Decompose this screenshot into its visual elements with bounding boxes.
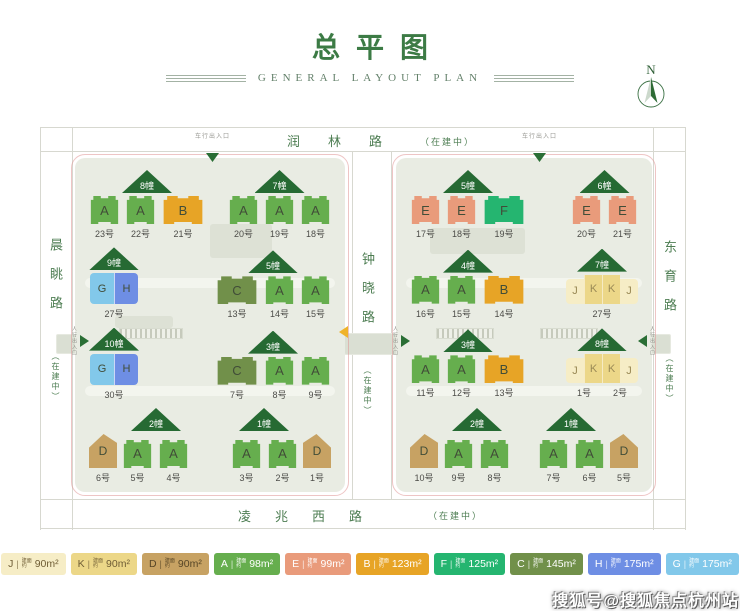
vehicle-entrance: 车行出入口 <box>522 131 557 162</box>
block-marker: 9幢 <box>89 247 139 270</box>
unit: C13号 <box>215 276 259 320</box>
building-A: A <box>410 355 441 383</box>
unit: E20号 <box>571 196 602 240</box>
building-row: 10幢GH30号3幢C7号A8号A9号 <box>85 328 335 401</box>
unit: A6号 <box>574 440 605 484</box>
building-A: A <box>89 196 120 224</box>
watermark: 搜狐号@搜狐焦点杭州站 <box>552 587 739 611</box>
legend-type-label: J <box>8 558 13 570</box>
unit: J <box>620 358 638 383</box>
vehicle-entrance-label: 车行出入口 <box>195 131 230 140</box>
road-line <box>40 151 686 152</box>
unit: A7号 <box>538 440 569 484</box>
legend-separator: | <box>160 559 162 569</box>
unit-number: 1号 <box>310 471 324 484</box>
building-group: 2幢D6号A5号A4号 <box>89 408 189 484</box>
unit-number: 19号 <box>270 227 289 240</box>
unit-number: 7号 <box>230 388 244 401</box>
units-row: E17号E18号F19号 <box>410 196 526 240</box>
unit: D6号 <box>89 434 117 484</box>
entrance-arrow-icon <box>401 335 410 347</box>
building-D: D <box>610 434 638 468</box>
units-row: A11号A12号B13号 <box>410 355 526 399</box>
legend-separator: | <box>302 559 304 569</box>
building-A: A <box>158 440 189 468</box>
unit-number: 30号 <box>104 388 123 401</box>
unit: A8号 <box>479 440 510 484</box>
road-status-right: （在建中） <box>664 354 675 404</box>
unit-number: 2号 <box>275 471 289 484</box>
pedestrian-entrance-label: 人行出入口 <box>392 326 399 356</box>
legend-separator: | <box>88 559 90 569</box>
building-E: E <box>571 196 602 224</box>
unit-number: 13号 <box>227 307 246 320</box>
building-group: 2幢D10号A9号A8号 <box>410 408 510 484</box>
building-row: 3幢A11号A12号B13号8幢JKKJ1号2号 <box>406 328 642 399</box>
unit: A18号 <box>300 196 331 240</box>
unit-number: 16号 <box>416 307 435 320</box>
units-row: GH <box>90 354 138 385</box>
unit-number: 27号 <box>592 307 611 320</box>
unit: D1号 <box>303 434 331 484</box>
unit: B14号 <box>482 276 526 320</box>
road-status-bottom: （在建中） <box>428 509 483 522</box>
unit-number: 20号 <box>234 227 253 240</box>
legend-type-label: K <box>78 558 85 570</box>
block-marker: 7幢 <box>577 249 627 272</box>
legend-chip-D: D|建面约90m² <box>142 553 209 575</box>
legend-type-label: B <box>363 558 370 570</box>
pedestrian-entrance-label: 人行出入口 <box>649 326 656 356</box>
unit: A20号 <box>228 196 259 240</box>
units-row: A16号A15号B14号 <box>410 276 526 320</box>
legend-chip-H: H|建面约175m² <box>588 553 661 575</box>
building-group: 5幢E17号E18号F19号 <box>410 170 526 240</box>
legend-chip-B: B|建面约123m² <box>356 553 428 575</box>
building-A: A <box>228 196 259 224</box>
legend-area-value: 175m² <box>702 558 732 570</box>
building-J: J <box>620 358 638 383</box>
page-subtitle: GENERAL LAYOUT PLAN <box>258 72 482 84</box>
unit: G <box>90 273 114 304</box>
building-row: 5幢E17号E18号F19号6幢E20号E21号 <box>406 170 642 240</box>
building-H: H <box>114 273 138 304</box>
block-marker: 2幢 <box>131 408 181 431</box>
unit: K <box>602 275 620 304</box>
parcel-west: 车行出入口 人行出入口 8幢A23号A22号B21号7幢A20号A19号A18号… <box>75 158 345 492</box>
unit: A9号 <box>443 440 474 484</box>
building-A: A <box>125 196 156 224</box>
road-line <box>40 528 686 529</box>
unit: E17号 <box>410 196 441 240</box>
unit-number: 18号 <box>452 227 471 240</box>
compass-n-label: N <box>646 62 656 77</box>
unit-number: 1号 <box>577 386 591 399</box>
building-group: 7幢A20号A19号A18号 <box>228 170 331 240</box>
unit-number: 6号 <box>582 471 596 484</box>
building-row: 8幢A23号A22号B21号7幢A20号A19号A18号 <box>85 170 335 240</box>
legend-area-value: 90m² <box>178 558 202 570</box>
group-labels: 27号 <box>89 307 139 320</box>
building-group: 8幢A23号A22号B21号 <box>89 170 205 240</box>
unit: A15号 <box>300 276 331 320</box>
unit: A16号 <box>410 276 441 320</box>
building-group: 3幢C7号A8号A9号 <box>215 331 331 401</box>
unit-number: 4号 <box>166 471 180 484</box>
unit-number: 11号 <box>416 386 434 399</box>
unit-number: 10号 <box>414 471 433 484</box>
unit: A3号 <box>231 440 262 484</box>
block-marker: 1幢 <box>239 408 289 431</box>
unit: H <box>114 354 138 385</box>
pedestrian-entrance-east: 人行出入口 <box>638 326 656 356</box>
road-line <box>40 127 686 128</box>
parcel-east: 车行出入口 人行出入口 人行出入口 5幢E17号E18号F19号6幢E20号E2… <box>396 158 652 492</box>
block-marker: 8幢 <box>577 328 627 351</box>
unit: D10号 <box>410 434 438 484</box>
unit-number: 23号 <box>95 227 114 240</box>
legend-chip-J: J|建面约90m² <box>1 553 66 575</box>
unit-number: 2号 <box>613 386 627 399</box>
building-G: G <box>90 354 114 385</box>
legend-area-prefix: 建面约 <box>22 559 32 569</box>
unit: A12号 <box>446 355 477 399</box>
unit-number: 27号 <box>104 307 123 320</box>
decorative-lines-left <box>166 75 246 82</box>
unit-number: 19号 <box>494 227 513 240</box>
building-B: B <box>482 276 526 304</box>
block-marker: 8幢 <box>122 170 172 193</box>
block-marker: 5幢 <box>443 170 493 193</box>
legend-chip-C: C|建面约145m² <box>510 553 583 575</box>
unit: A23号 <box>89 196 120 240</box>
unit-number: 3号 <box>239 471 253 484</box>
building-A: A <box>443 440 474 468</box>
legend-type-label: F <box>441 558 447 570</box>
building-A: A <box>264 357 295 385</box>
unit-number: 7号 <box>546 471 560 484</box>
building-group: 1幢A3号A2号D1号 <box>231 408 331 484</box>
pedestrian-entrance-west: 人行出入口 <box>71 326 89 356</box>
legend-chip-K: K|建面约90m² <box>71 553 137 575</box>
legend-area-value: 145m² <box>546 558 576 570</box>
unit-number: 22号 <box>131 227 150 240</box>
legend-area-prefix: 建面约 <box>308 559 318 569</box>
pedestrian-entrance-east <box>339 326 348 338</box>
road-status-middle: （在建中） <box>362 366 373 416</box>
entrance-arrow-icon <box>533 153 546 162</box>
block-marker: 3幢 <box>248 331 298 354</box>
legend-area-value: 123m² <box>392 558 422 570</box>
building-E: E <box>410 196 441 224</box>
unit: D5号 <box>610 434 638 484</box>
building-A: A <box>300 196 331 224</box>
building-A: A <box>446 355 477 383</box>
units-row: D10号A9号A8号 <box>410 434 510 484</box>
building-G: G <box>90 273 114 304</box>
unit-number: 15号 <box>306 307 325 320</box>
legend-area-prefix: 建面约 <box>165 559 175 569</box>
building-group: 6幢E20号E21号 <box>571 170 638 240</box>
block-marker: 4幢 <box>443 250 493 273</box>
legend-area-prefix: 建面约 <box>236 559 246 569</box>
block-marker: 5幢 <box>248 250 298 273</box>
unit-number: 21号 <box>613 227 632 240</box>
subtitle-row: GENERAL LAYOUT PLAN <box>0 72 740 84</box>
units-row: JKKJ <box>566 354 638 383</box>
road-line <box>352 152 353 500</box>
units-row: JKKJ <box>566 275 638 304</box>
building-A: A <box>300 357 331 385</box>
road-line <box>40 127 41 530</box>
building-group: 3幢A11号A12号B13号 <box>410 329 526 399</box>
road-line <box>685 127 686 530</box>
building-A: A <box>479 440 510 468</box>
unit-number: 8号 <box>487 471 501 484</box>
unit: K <box>584 354 602 383</box>
legend-type-label: A <box>221 558 228 570</box>
group-labels: 30号 <box>89 388 139 401</box>
legend-area-prefix: 建面约 <box>533 559 543 569</box>
building-group: 1幢A7号A6号D5号 <box>538 408 638 484</box>
unit: A4号 <box>158 440 189 484</box>
unit: K <box>584 275 602 304</box>
unit: A8号 <box>264 357 295 401</box>
unit: E21号 <box>607 196 638 240</box>
legend-separator: | <box>605 559 607 569</box>
unit: J <box>566 279 584 304</box>
block-marker: 10幢 <box>89 328 139 351</box>
units-row: A7号A6号D5号 <box>538 434 638 484</box>
entrance-arrow-yellow-icon <box>339 326 348 338</box>
pedestrian-entrance-west: 人行出入口 <box>392 326 410 356</box>
building-A: A <box>300 276 331 304</box>
building-K: K <box>584 354 602 383</box>
vehicle-entrance-label: 车行出入口 <box>522 131 557 140</box>
legend-type-label: G <box>673 558 681 570</box>
unit: G <box>90 354 114 385</box>
building-group: 8幢JKKJ1号2号 <box>566 328 638 399</box>
legend-separator: | <box>16 559 18 569</box>
unit: A14号 <box>264 276 295 320</box>
road-status-left: （在建中） <box>50 352 61 402</box>
legend-area-prefix: 建面约 <box>93 559 103 569</box>
unit: K <box>602 354 620 383</box>
block-marker: 6幢 <box>580 170 630 193</box>
building-B: B <box>482 355 526 383</box>
unit: F19号 <box>482 196 526 240</box>
unit: B21号 <box>161 196 205 240</box>
building-row: 4幢A16号A15号B14号7幢JKKJ27号 <box>406 249 642 320</box>
legend-area-prefix: 建面约 <box>455 559 465 569</box>
legend-chip-G: G|建面约175m² <box>666 553 739 575</box>
building-A: A <box>122 440 153 468</box>
units-row: C7号A8号A9号 <box>215 357 331 401</box>
unit-number: 17号 <box>416 227 435 240</box>
legend: J|建面约90m²K|建面约90m²D|建面约90m²A|建面约98m²E|建面… <box>0 553 740 575</box>
building-D: D <box>89 434 117 468</box>
unit-number: 8号 <box>272 388 286 401</box>
legend-area-value: 98m² <box>249 558 273 570</box>
vehicle-entrance: 车行出入口 <box>195 131 230 162</box>
building-A: A <box>446 276 477 304</box>
legend-area-prefix: 建面约 <box>379 559 389 569</box>
unit-number: 14号 <box>270 307 289 320</box>
units-row: C13号A14号A15号 <box>215 276 331 320</box>
building-H: H <box>114 354 138 385</box>
road-label-left: 晨眺路 <box>46 238 65 325</box>
pedestrian-entrance-label: 人行出入口 <box>71 326 78 356</box>
legend-separator: | <box>528 559 530 569</box>
unit-number: 15号 <box>452 307 471 320</box>
legend-type-label: C <box>517 558 525 570</box>
legend-separator: | <box>450 559 452 569</box>
building-K: K <box>584 275 602 304</box>
entrance-arrow-icon <box>638 335 647 347</box>
road-label-top: 润林路 <box>287 131 410 150</box>
units-row: E20号E21号 <box>571 196 638 240</box>
road-label-bottom: 凌兆西路 <box>238 506 386 525</box>
building-D: D <box>410 434 438 468</box>
legend-area-prefix: 建面约 <box>611 559 621 569</box>
road-label-right: 东育路 <box>660 240 679 327</box>
building-F: F <box>482 196 526 224</box>
unit-number: 14号 <box>494 307 513 320</box>
units-row: GH <box>90 273 138 304</box>
legend-type-label: E <box>292 558 299 570</box>
legend-area-value: 99m² <box>321 558 345 570</box>
legend-area-value: 90m² <box>35 558 59 570</box>
building-K: K <box>602 354 620 383</box>
legend-separator: | <box>684 559 686 569</box>
road-label-middle: 钟晓路 <box>358 252 377 339</box>
unit-number: 5号 <box>130 471 144 484</box>
unit: A5号 <box>122 440 153 484</box>
building-row: 9幢GH27号5幢C13号A14号A15号 <box>85 247 335 320</box>
building-A: A <box>231 440 262 468</box>
page-title: 总平图 <box>0 26 740 66</box>
unit: H <box>114 273 138 304</box>
legend-area-value: 90m² <box>106 558 130 570</box>
legend-type-label: D <box>149 558 157 570</box>
building-A: A <box>574 440 605 468</box>
building-B: B <box>161 196 205 224</box>
unit: B13号 <box>482 355 526 399</box>
building-J: J <box>566 279 584 304</box>
decorative-lines-right <box>494 75 574 82</box>
legend-separator: | <box>231 559 233 569</box>
units-row: D6号A5号A4号 <box>89 434 189 484</box>
block-marker: 1幢 <box>546 408 596 431</box>
building-C: C <box>215 276 259 304</box>
unit-number: 9号 <box>308 388 322 401</box>
entrance-arrow-icon <box>80 335 89 347</box>
block-marker: 7幢 <box>255 170 305 193</box>
legend-area-prefix: 建面约 <box>689 559 699 569</box>
unit: A11号 <box>410 355 441 399</box>
entrance-arrow-icon <box>206 153 219 162</box>
unit-number: 6号 <box>96 471 110 484</box>
unit: J <box>620 279 638 304</box>
building-row: 2幢D6号A5号A4号1幢A3号A2号D1号 <box>85 408 335 484</box>
building-A: A <box>267 440 298 468</box>
building-row: 2幢D10号A9号A8号1幢A7号A6号D5号 <box>406 408 642 484</box>
legend-area-value: 175m² <box>624 558 654 570</box>
unit: A9号 <box>300 357 331 401</box>
unit-number: 12号 <box>452 386 471 399</box>
legend-area-value: 125m² <box>468 558 498 570</box>
building-C: C <box>215 357 259 385</box>
building-J: J <box>620 279 638 304</box>
units-row: A20号A19号A18号 <box>228 196 331 240</box>
units-row: A23号A22号B21号 <box>89 196 205 240</box>
legend-separator: | <box>373 559 375 569</box>
building-D: D <box>303 434 331 468</box>
road-status-top: （在建中） <box>420 135 475 148</box>
building-group: 4幢A16号A15号B14号 <box>410 250 526 320</box>
compass-north-icon: N <box>630 60 672 118</box>
unit-number: 21号 <box>173 227 192 240</box>
unit: A2号 <box>267 440 298 484</box>
building-A: A <box>410 276 441 304</box>
unit: E18号 <box>446 196 477 240</box>
road-line <box>40 499 686 500</box>
group-labels: 1号2号 <box>566 386 638 399</box>
unit-number: 13号 <box>494 386 513 399</box>
building-K: K <box>602 275 620 304</box>
units-row: A3号A2号D1号 <box>231 434 331 484</box>
block-marker: 2幢 <box>452 408 502 431</box>
building-group: 10幢GH30号 <box>89 328 139 401</box>
building-E: E <box>446 196 477 224</box>
building-E: E <box>607 196 638 224</box>
legend-type-label: H <box>595 558 603 570</box>
unit: A22号 <box>125 196 156 240</box>
unit-number: 9号 <box>451 471 465 484</box>
unit: J <box>566 358 584 383</box>
unit: C7号 <box>215 357 259 401</box>
legend-chip-A: A|建面约98m² <box>214 553 280 575</box>
unit: A19号 <box>264 196 295 240</box>
unit-number: 20号 <box>577 227 596 240</box>
legend-chip-F: F|建面约125m² <box>434 553 506 575</box>
unit-number: 5号 <box>617 471 631 484</box>
group-labels: 27号 <box>566 307 638 320</box>
building-J: J <box>566 358 584 383</box>
unit: A15号 <box>446 276 477 320</box>
building-A: A <box>538 440 569 468</box>
building-A: A <box>264 196 295 224</box>
block-marker: 3幢 <box>443 329 493 352</box>
building-group: 5幢C13号A14号A15号 <box>215 250 331 320</box>
legend-chip-E: E|建面约99m² <box>285 553 351 575</box>
building-A: A <box>264 276 295 304</box>
building-group: 7幢JKKJ27号 <box>566 249 638 320</box>
road-crossing <box>344 333 398 355</box>
building-group: 9幢GH27号 <box>89 247 139 320</box>
unit-number: 18号 <box>306 227 325 240</box>
